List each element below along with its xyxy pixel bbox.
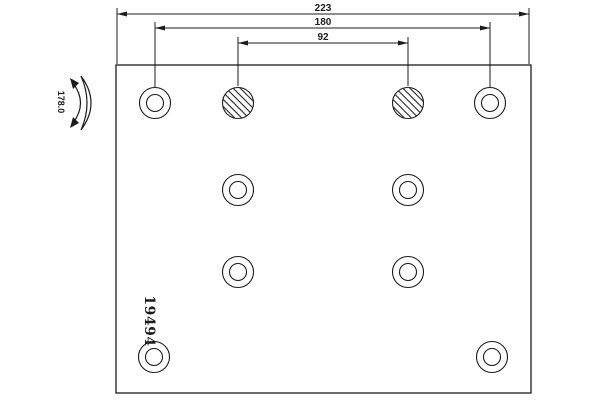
lining-crescent-icon (81, 76, 91, 130)
drawing-svg: 223 180 92 178. (0, 0, 600, 400)
rivet-hole-inner (482, 95, 499, 112)
dimension-label-total: 223 (315, 3, 332, 14)
dimension-label-outer: 180 (315, 17, 332, 28)
curvature-symbol: 178.0 (56, 76, 91, 130)
hatched-hole (393, 88, 424, 119)
curvature-arc-icon (73, 83, 81, 123)
rivet-hole-inner (146, 349, 163, 366)
rivet-hole-inner (484, 349, 501, 366)
curvature-arrow-top-icon (70, 78, 79, 89)
arrow-left-icon (117, 12, 127, 17)
rivet-hole-inner (230, 264, 247, 281)
curvature-radius-label: 178.0 (56, 91, 66, 114)
arrow-right-icon (398, 41, 408, 46)
lining-plate-outline (116, 65, 531, 393)
dimension-label-inner: 92 (317, 32, 329, 43)
brake-lining-technical-drawing: 223 180 92 178. (0, 0, 600, 400)
rivet-hole-inner (230, 182, 247, 199)
rivet-hole-inner (400, 264, 417, 281)
hatched-hole (223, 88, 254, 119)
arrow-left-icon (238, 41, 248, 46)
rivet-hole-inner (400, 182, 417, 199)
curvature-arrow-bottom-icon (70, 117, 79, 128)
arrow-right-icon (480, 26, 490, 31)
arrow-left-icon (155, 26, 165, 31)
rivet-hole-inner (147, 95, 164, 112)
arrow-right-icon (519, 12, 529, 17)
part-number-label: 19494 (141, 295, 157, 346)
